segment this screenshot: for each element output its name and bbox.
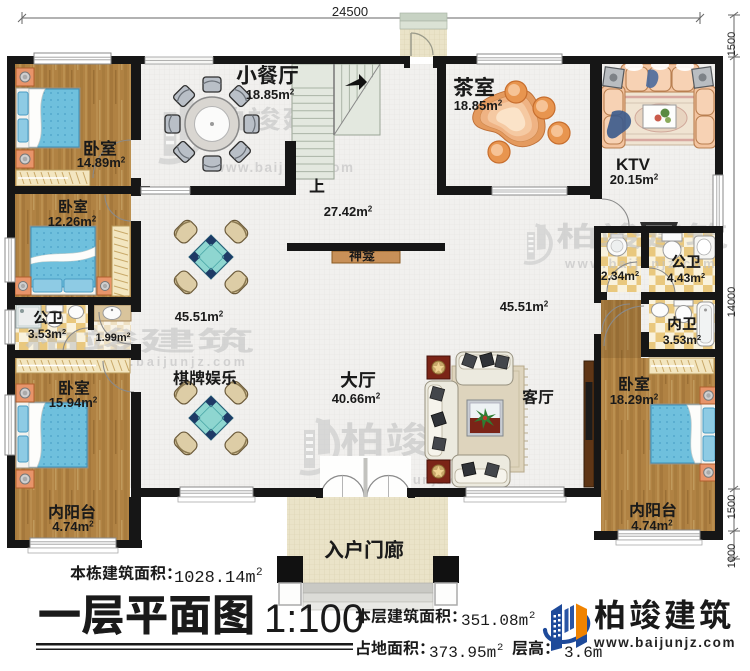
- svg-text:4.74m2: 4.74m2: [52, 519, 94, 534]
- svg-text:3.53m2: 3.53m2: [28, 327, 66, 341]
- svg-text:45.51m2: 45.51m2: [500, 299, 549, 314]
- svg-text:2: 2: [497, 642, 503, 654]
- svg-text:18.85m2: 18.85m2: [454, 98, 503, 113]
- svg-text:20.15m2: 20.15m2: [610, 172, 659, 187]
- svg-text:373.95m: 373.95m: [429, 644, 496, 662]
- svg-text:1:100: 1:100: [264, 597, 364, 641]
- svg-text:1500: 1500: [726, 495, 738, 519]
- svg-text:14.89m2: 14.89m2: [77, 155, 126, 170]
- svg-text:www.baijunjz.com: www.baijunjz.com: [593, 635, 736, 650]
- svg-text:2.34m2: 2.34m2: [601, 269, 639, 283]
- svg-text:351.08m: 351.08m: [461, 612, 528, 630]
- svg-text:45.51m2: 45.51m2: [175, 309, 224, 324]
- svg-text:1000: 1000: [726, 544, 738, 568]
- svg-text:4.43m2: 4.43m2: [667, 271, 705, 285]
- svg-text:1028.14m: 1028.14m: [174, 569, 256, 588]
- svg-text:1.99m2: 1.99m2: [96, 332, 131, 344]
- svg-text:www.baijunjz.com: www.baijunjz.com: [564, 256, 717, 271]
- svg-text:2: 2: [256, 567, 263, 579]
- svg-text:15.94m2: 15.94m2: [49, 395, 98, 410]
- svg-text:12.26m2: 12.26m2: [48, 214, 97, 229]
- svg-text:40.66m2: 40.66m2: [332, 391, 381, 406]
- svg-text:2: 2: [529, 610, 535, 622]
- svg-text:18.29m2: 18.29m2: [610, 392, 659, 407]
- svg-text:1500: 1500: [726, 32, 738, 56]
- svg-text:4.74m2: 4.74m2: [631, 518, 673, 533]
- svg-text:27.42m2: 27.42m2: [324, 204, 373, 219]
- svg-text:24500: 24500: [332, 4, 368, 19]
- svg-text:18.85m2: 18.85m2: [246, 87, 295, 102]
- svg-text:14000: 14000: [726, 287, 738, 318]
- svg-text:3.53m2: 3.53m2: [663, 333, 701, 347]
